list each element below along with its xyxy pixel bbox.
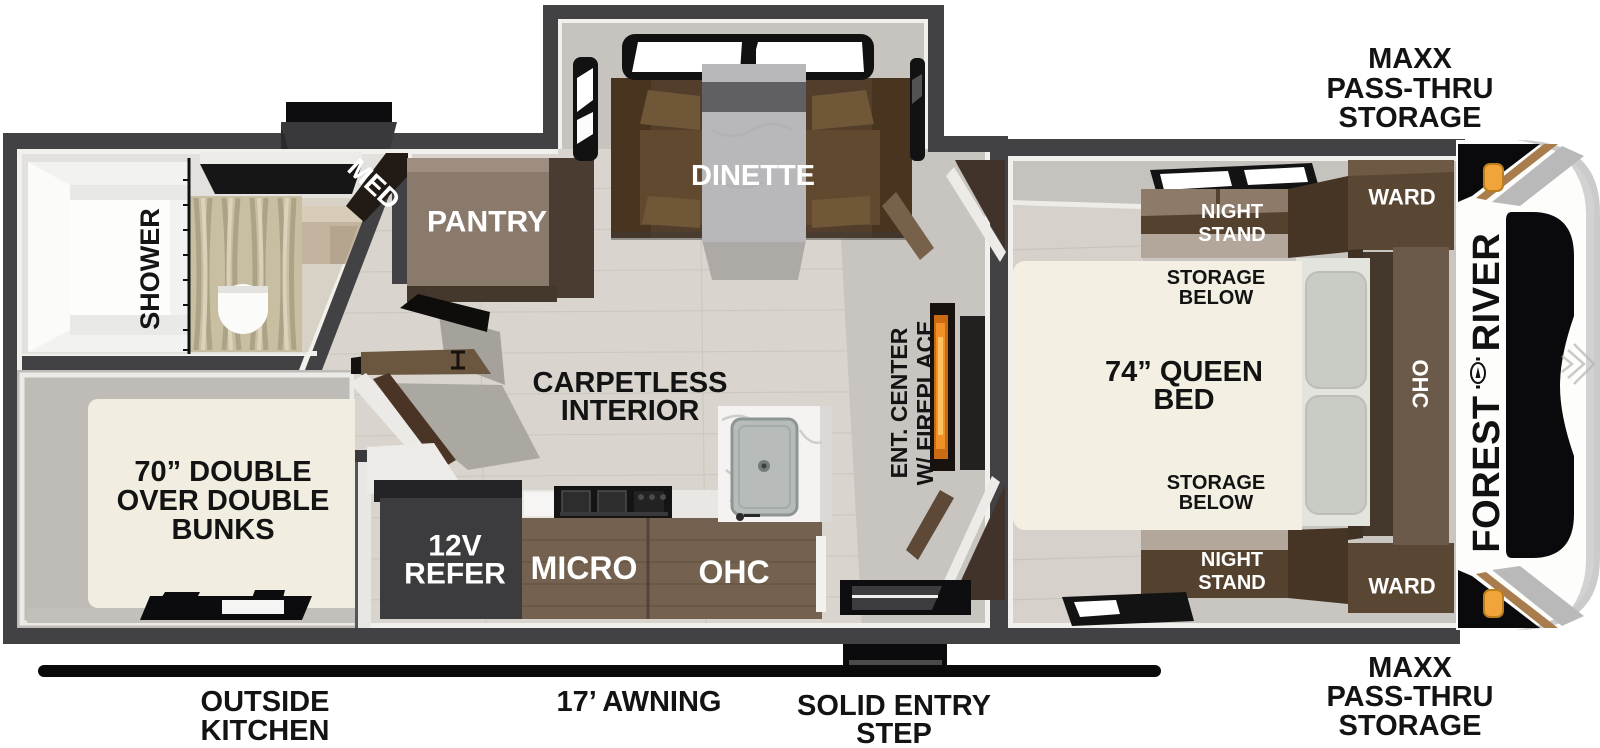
svg-text:STAND: STAND (1198, 224, 1265, 246)
svg-text:BUNKS: BUNKS (171, 514, 274, 546)
svg-text:WARD: WARD (1368, 185, 1435, 210)
svg-text:70” DOUBLE: 70” DOUBLE (134, 456, 311, 488)
svg-text:BELOW: BELOW (1179, 287, 1254, 309)
svg-text:OUTSIDE: OUTSIDE (201, 686, 330, 718)
svg-text:17’ AWNING: 17’ AWNING (557, 686, 722, 718)
svg-text:KITCHEN: KITCHEN (201, 715, 330, 747)
svg-text:SHOWER: SHOWER (135, 208, 165, 330)
svg-text:BED: BED (1153, 384, 1214, 416)
svg-text:MICRO: MICRO (531, 550, 638, 586)
svg-text:PANTRY: PANTRY (427, 206, 547, 239)
svg-text:MAXX: MAXX (1368, 43, 1452, 75)
svg-text:STORAGE: STORAGE (1167, 267, 1266, 289)
svg-text:NIGHT: NIGHT (1201, 201, 1263, 223)
svg-text:BELOW: BELOW (1179, 492, 1254, 514)
svg-text:OHC: OHC (698, 554, 769, 590)
svg-text:OHC: OHC (1408, 360, 1433, 409)
svg-text:OVER DOUBLE: OVER DOUBLE (117, 485, 330, 517)
svg-text:STORAGE: STORAGE (1167, 472, 1266, 494)
svg-text:WARD: WARD (1368, 574, 1435, 599)
svg-text:DINETTE: DINETTE (691, 160, 815, 192)
svg-text:RIVER: RIVER (1466, 233, 1508, 352)
svg-text:STORAGE: STORAGE (1339, 710, 1482, 742)
svg-text:STORAGE: STORAGE (1339, 102, 1482, 134)
svg-text:ENT. CENTER: ENT. CENTER (886, 327, 912, 478)
svg-text:STAND: STAND (1198, 572, 1265, 594)
svg-text:NIGHT: NIGHT (1201, 549, 1263, 571)
svg-text:REFER: REFER (404, 558, 506, 591)
svg-text:W/ FIREPLACE: W/ FIREPLACE (912, 321, 938, 486)
svg-text:FOREST: FOREST (1466, 395, 1508, 552)
svg-text:PASS-THRU: PASS-THRU (1326, 681, 1493, 713)
svg-text:STEP: STEP (856, 718, 932, 748)
svg-text:INTERIOR: INTERIOR (561, 395, 700, 427)
svg-text:PASS-THRU: PASS-THRU (1326, 73, 1493, 105)
svg-text:MAXX: MAXX (1368, 652, 1452, 684)
